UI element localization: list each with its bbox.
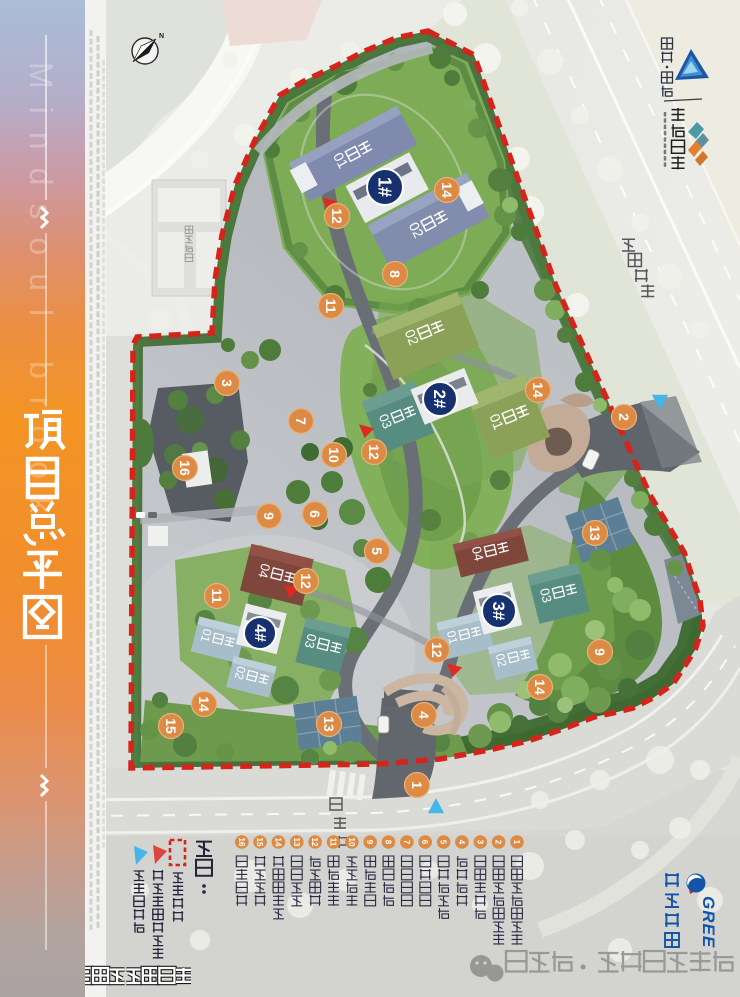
svg-text:6: 6 (307, 510, 323, 518)
svg-text:12: 12 (366, 444, 382, 460)
svg-text:11: 11 (329, 838, 338, 847)
svg-text:9: 9 (365, 840, 374, 845)
svg-text:5: 5 (439, 840, 448, 845)
svg-text:6: 6 (420, 840, 429, 845)
svg-text:2: 2 (616, 413, 632, 421)
svg-text:9: 9 (592, 648, 608, 656)
svg-text:13: 13 (587, 525, 603, 541)
svg-text:12: 12 (298, 573, 314, 589)
svg-text:15: 15 (163, 718, 179, 734)
svg-text:3: 3 (219, 379, 235, 387)
svg-text:3: 3 (475, 840, 484, 845)
svg-text:1: 1 (512, 840, 521, 845)
svg-text:16: 16 (237, 838, 246, 847)
svg-text:7: 7 (293, 417, 309, 425)
svg-text:5: 5 (369, 547, 385, 555)
svg-text:N: N (159, 33, 164, 40)
svg-text:GREE: GREE (699, 896, 718, 948)
svg-text:2: 2 (494, 840, 503, 845)
svg-text:1: 1 (409, 781, 425, 789)
svg-text:7: 7 (402, 840, 411, 845)
svg-text:12: 12 (329, 208, 345, 224)
svg-text:11: 11 (209, 589, 225, 604)
svg-text:14: 14 (196, 696, 212, 712)
svg-text:14: 14 (530, 382, 546, 398)
svg-text:12: 12 (310, 838, 319, 847)
svg-text:4#: 4# (251, 624, 268, 642)
svg-text:14: 14 (273, 838, 282, 847)
svg-text:3#: 3# (489, 602, 508, 621)
svg-text:4: 4 (457, 840, 466, 845)
svg-text:14: 14 (439, 182, 455, 198)
svg-text:11: 11 (323, 299, 339, 314)
svg-text:16: 16 (177, 460, 193, 476)
svg-text:15: 15 (255, 838, 264, 847)
svg-text:12: 12 (429, 642, 445, 658)
svg-text:10: 10 (347, 838, 356, 847)
svg-text:8: 8 (384, 840, 393, 845)
svg-text:14: 14 (532, 679, 548, 695)
svg-text:13: 13 (321, 716, 337, 732)
svg-text:2#: 2# (430, 390, 449, 409)
svg-text:9: 9 (261, 512, 277, 520)
svg-text:8: 8 (387, 270, 403, 278)
svg-text:1#: 1# (375, 177, 395, 197)
svg-text:13: 13 (292, 838, 301, 847)
svg-text:10: 10 (326, 447, 342, 463)
svg-text:4: 4 (416, 711, 432, 719)
